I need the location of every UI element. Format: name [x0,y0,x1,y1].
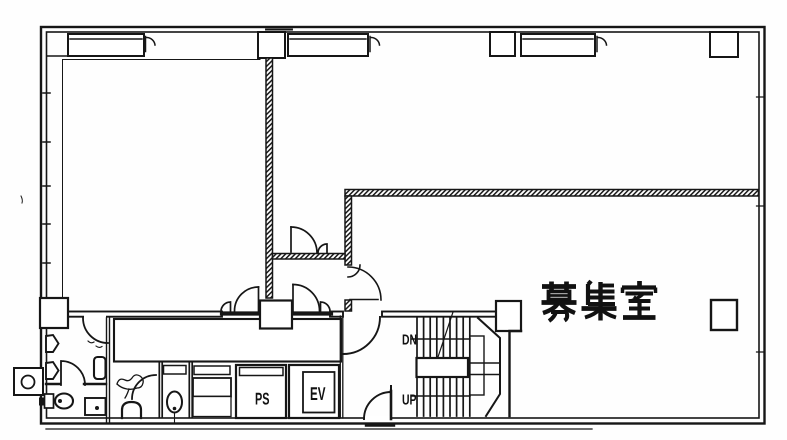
svg-text:UP: UP [402,393,417,409]
svg-text:DN: DN [402,333,417,349]
svg-text:PS: PS [255,390,270,409]
svg-text:EV: EV [310,383,326,404]
